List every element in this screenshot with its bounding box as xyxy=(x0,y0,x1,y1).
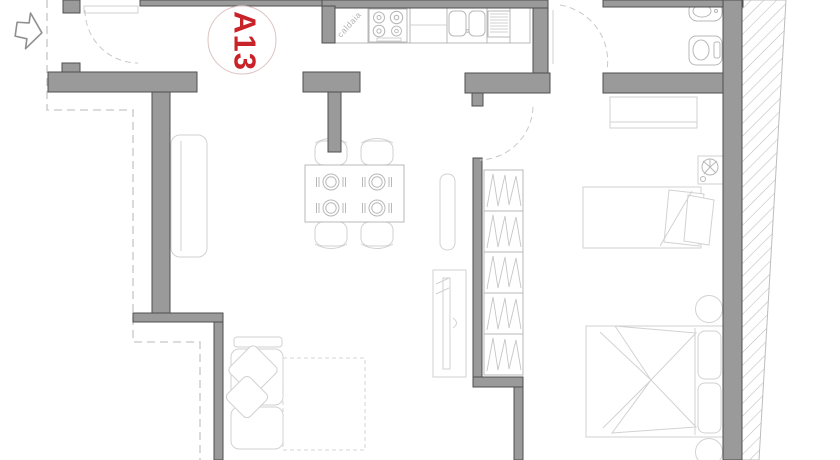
pillow-icon xyxy=(698,383,721,433)
sofa xyxy=(171,135,207,257)
toilet-icon xyxy=(689,36,722,65)
single-bed xyxy=(583,187,714,248)
headboard xyxy=(234,337,282,347)
round-stool xyxy=(696,439,723,460)
bedroom-bottom-right xyxy=(586,296,723,460)
bathroom xyxy=(689,2,722,65)
closet xyxy=(610,97,697,128)
bedroom-top-right xyxy=(583,97,724,248)
unit-label: A13 xyxy=(228,11,263,71)
floor-plan: A13 caldaia xyxy=(0,0,840,460)
bedroom-door-swing xyxy=(480,107,533,160)
pillow-icon xyxy=(684,195,714,245)
nightstand-plant xyxy=(698,156,724,184)
party-wall-hatch xyxy=(742,0,786,460)
drainer-icon xyxy=(488,11,510,37)
sink-icon xyxy=(449,11,485,36)
blanket-fold xyxy=(615,326,696,380)
boiler-note: caldaia xyxy=(335,10,363,40)
kitchen xyxy=(335,8,530,43)
unit-badge: A13 xyxy=(208,6,276,74)
tv-cabinet xyxy=(433,270,466,377)
bedroom-left xyxy=(224,337,365,450)
mattress xyxy=(283,358,365,450)
entry-door-leaf xyxy=(84,6,138,13)
shelf-unit xyxy=(440,174,455,250)
hanging-clothes-icon xyxy=(487,174,521,371)
double-bed xyxy=(586,326,723,437)
dining-table xyxy=(305,139,404,249)
round-stool xyxy=(696,296,723,323)
bath-door-swing xyxy=(560,5,608,70)
walls xyxy=(48,0,743,460)
pillow-icon xyxy=(698,331,721,379)
entry-arrow-icon xyxy=(14,11,45,50)
entry-door-swing xyxy=(85,10,138,63)
wardrobe xyxy=(484,170,523,375)
stove-icon xyxy=(369,9,407,42)
